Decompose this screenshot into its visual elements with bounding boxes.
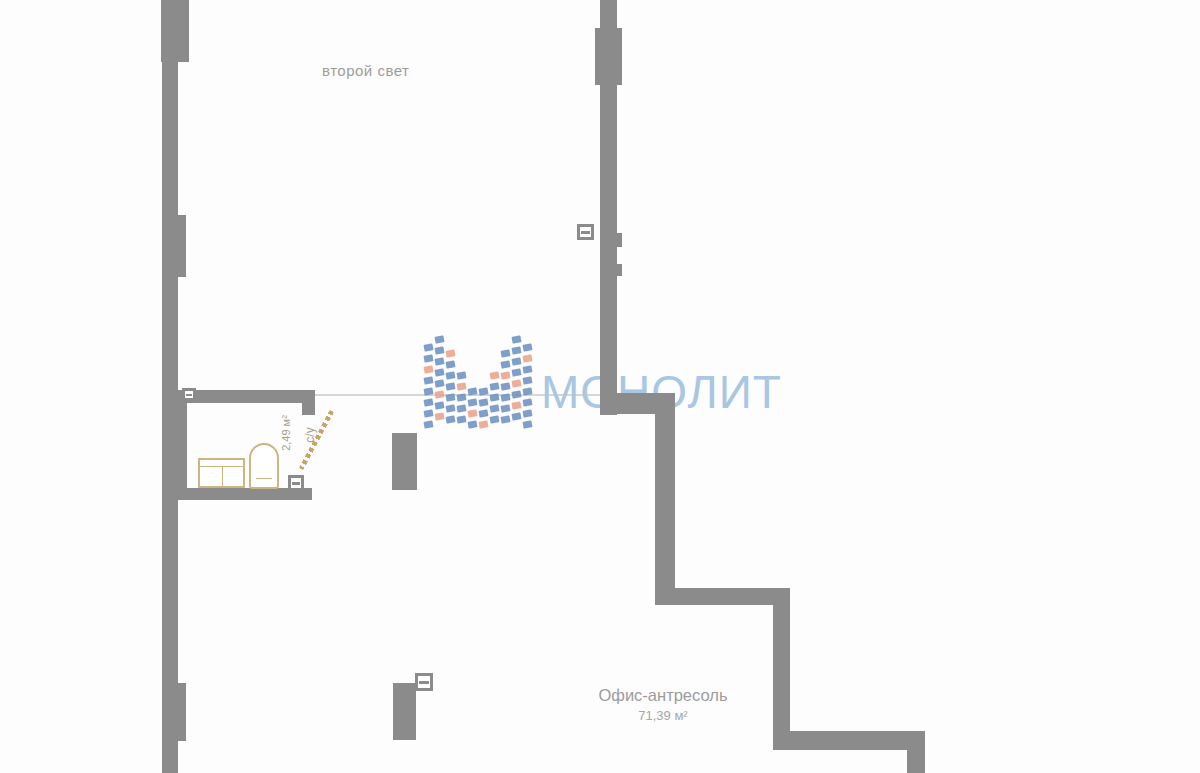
logo-tile <box>511 412 521 420</box>
logo-tile <box>445 382 455 390</box>
wall-bathroom-left <box>162 390 187 500</box>
wall-center-pilaster-top <box>595 28 622 85</box>
wall-step-vertical-1 <box>655 393 675 593</box>
shaft-marker-glyph <box>419 681 429 684</box>
logo-tile <box>423 343 433 351</box>
logo-tile <box>434 346 444 354</box>
logo-tile <box>500 415 510 423</box>
shaft-marker-bathroom-top <box>182 388 196 401</box>
office-area-label: 71,39 м² <box>563 708 763 723</box>
logo-tile <box>522 387 532 395</box>
logo-tile <box>456 393 466 401</box>
shaft-marker-glyph <box>581 231 590 234</box>
logo-tile <box>522 343 532 351</box>
logo-tile <box>511 390 521 398</box>
sink-detail <box>222 466 223 486</box>
wall-bathroom-top <box>180 390 315 403</box>
logo-tile <box>456 404 466 412</box>
logo-tile <box>467 420 477 428</box>
office-name-label: Офис-антресоль <box>563 686 763 705</box>
logo-tile <box>423 365 433 373</box>
wall-left-pilaster-lower <box>162 683 186 741</box>
wall-step-horizontal-2 <box>773 731 925 750</box>
logo-tile <box>467 409 477 417</box>
wall-bathroom-door-jamb <box>302 403 315 415</box>
shaft-marker-glyph <box>292 482 300 485</box>
logo-tile <box>511 335 521 343</box>
logo-tile <box>423 354 433 362</box>
logo-tile <box>423 376 433 384</box>
logo-tile <box>500 360 510 368</box>
logo-tile <box>522 354 532 362</box>
wall-step-vertical-2 <box>773 588 790 750</box>
toilet-detail <box>256 478 272 479</box>
logo-tile <box>478 387 488 395</box>
wall-left-pilaster-upper <box>162 215 186 277</box>
logo-tile <box>511 401 521 409</box>
brand-logo-icon <box>424 336 536 428</box>
toilet-icon <box>249 443 279 489</box>
column-upper <box>392 433 417 490</box>
wall-left-top-block <box>161 0 189 62</box>
logo-tile <box>467 387 477 395</box>
wall-center-bump-b <box>616 264 622 276</box>
logo-tile <box>489 415 499 423</box>
wall-step-horizontal-1 <box>655 588 790 605</box>
logo-tile <box>456 371 466 379</box>
wall-center-bump-a <box>616 233 622 247</box>
logo-tile <box>434 357 444 365</box>
logo-tile <box>500 393 510 401</box>
logo-tile <box>489 382 499 390</box>
logo-tile <box>423 409 433 417</box>
logo-tile <box>434 379 444 387</box>
logo-tile <box>456 415 466 423</box>
logo-tile <box>522 420 532 428</box>
logo-tile <box>445 393 455 401</box>
logo-tile <box>423 420 433 428</box>
sink-icon <box>198 458 245 488</box>
logo-tile <box>423 398 433 406</box>
logo-tile <box>489 371 499 379</box>
logo-tile <box>434 412 444 420</box>
logo-tile <box>445 349 455 357</box>
logo-tile <box>511 346 521 354</box>
logo-tile <box>434 368 444 376</box>
logo-tile <box>478 409 488 417</box>
logo-tile <box>456 382 466 390</box>
office-label-block: Офис-антресоль 71,39 м² <box>563 686 763 723</box>
logo-tile <box>445 360 455 368</box>
logo-tile <box>511 379 521 387</box>
bathroom-area-label: 2,49 м² <box>280 401 292 465</box>
shaft-marker-center-wall <box>577 224 594 240</box>
logo-tile <box>522 376 532 384</box>
shaft-marker-column-lower <box>415 673 433 691</box>
logo-tile <box>434 335 444 343</box>
logo-tile <box>500 349 510 357</box>
shaft-marker-bathroom-door <box>288 475 304 491</box>
logo-tile <box>489 404 499 412</box>
logo-tile <box>467 398 477 406</box>
logo-tile <box>522 365 532 373</box>
logo-tile <box>500 371 510 379</box>
logo-tile <box>434 401 444 409</box>
logo-tile <box>445 415 455 423</box>
bathroom-name-label: с/у <box>303 417 317 453</box>
logo-tile <box>500 404 510 412</box>
logo-tile <box>434 390 444 398</box>
logo-tile <box>500 382 510 390</box>
column-lower <box>393 683 416 740</box>
logo-tile <box>445 404 455 412</box>
wall-left-main <box>162 0 178 773</box>
logo-tile <box>445 371 455 379</box>
logo-tile <box>478 420 488 428</box>
logo-tile <box>511 357 521 365</box>
logo-tile <box>478 398 488 406</box>
second-light-label: второй свет <box>322 62 409 79</box>
floor-plan: МОНОЛИТ второй свет Офис-антресоль 71,39… <box>0 0 1200 773</box>
logo-tile <box>511 368 521 376</box>
wall-step-vertical-3 <box>907 750 925 773</box>
logo-tile <box>522 409 532 417</box>
shaft-marker-glyph <box>186 394 192 397</box>
logo-tile <box>489 393 499 401</box>
logo-tile <box>423 387 433 395</box>
logo-tile <box>522 398 532 406</box>
